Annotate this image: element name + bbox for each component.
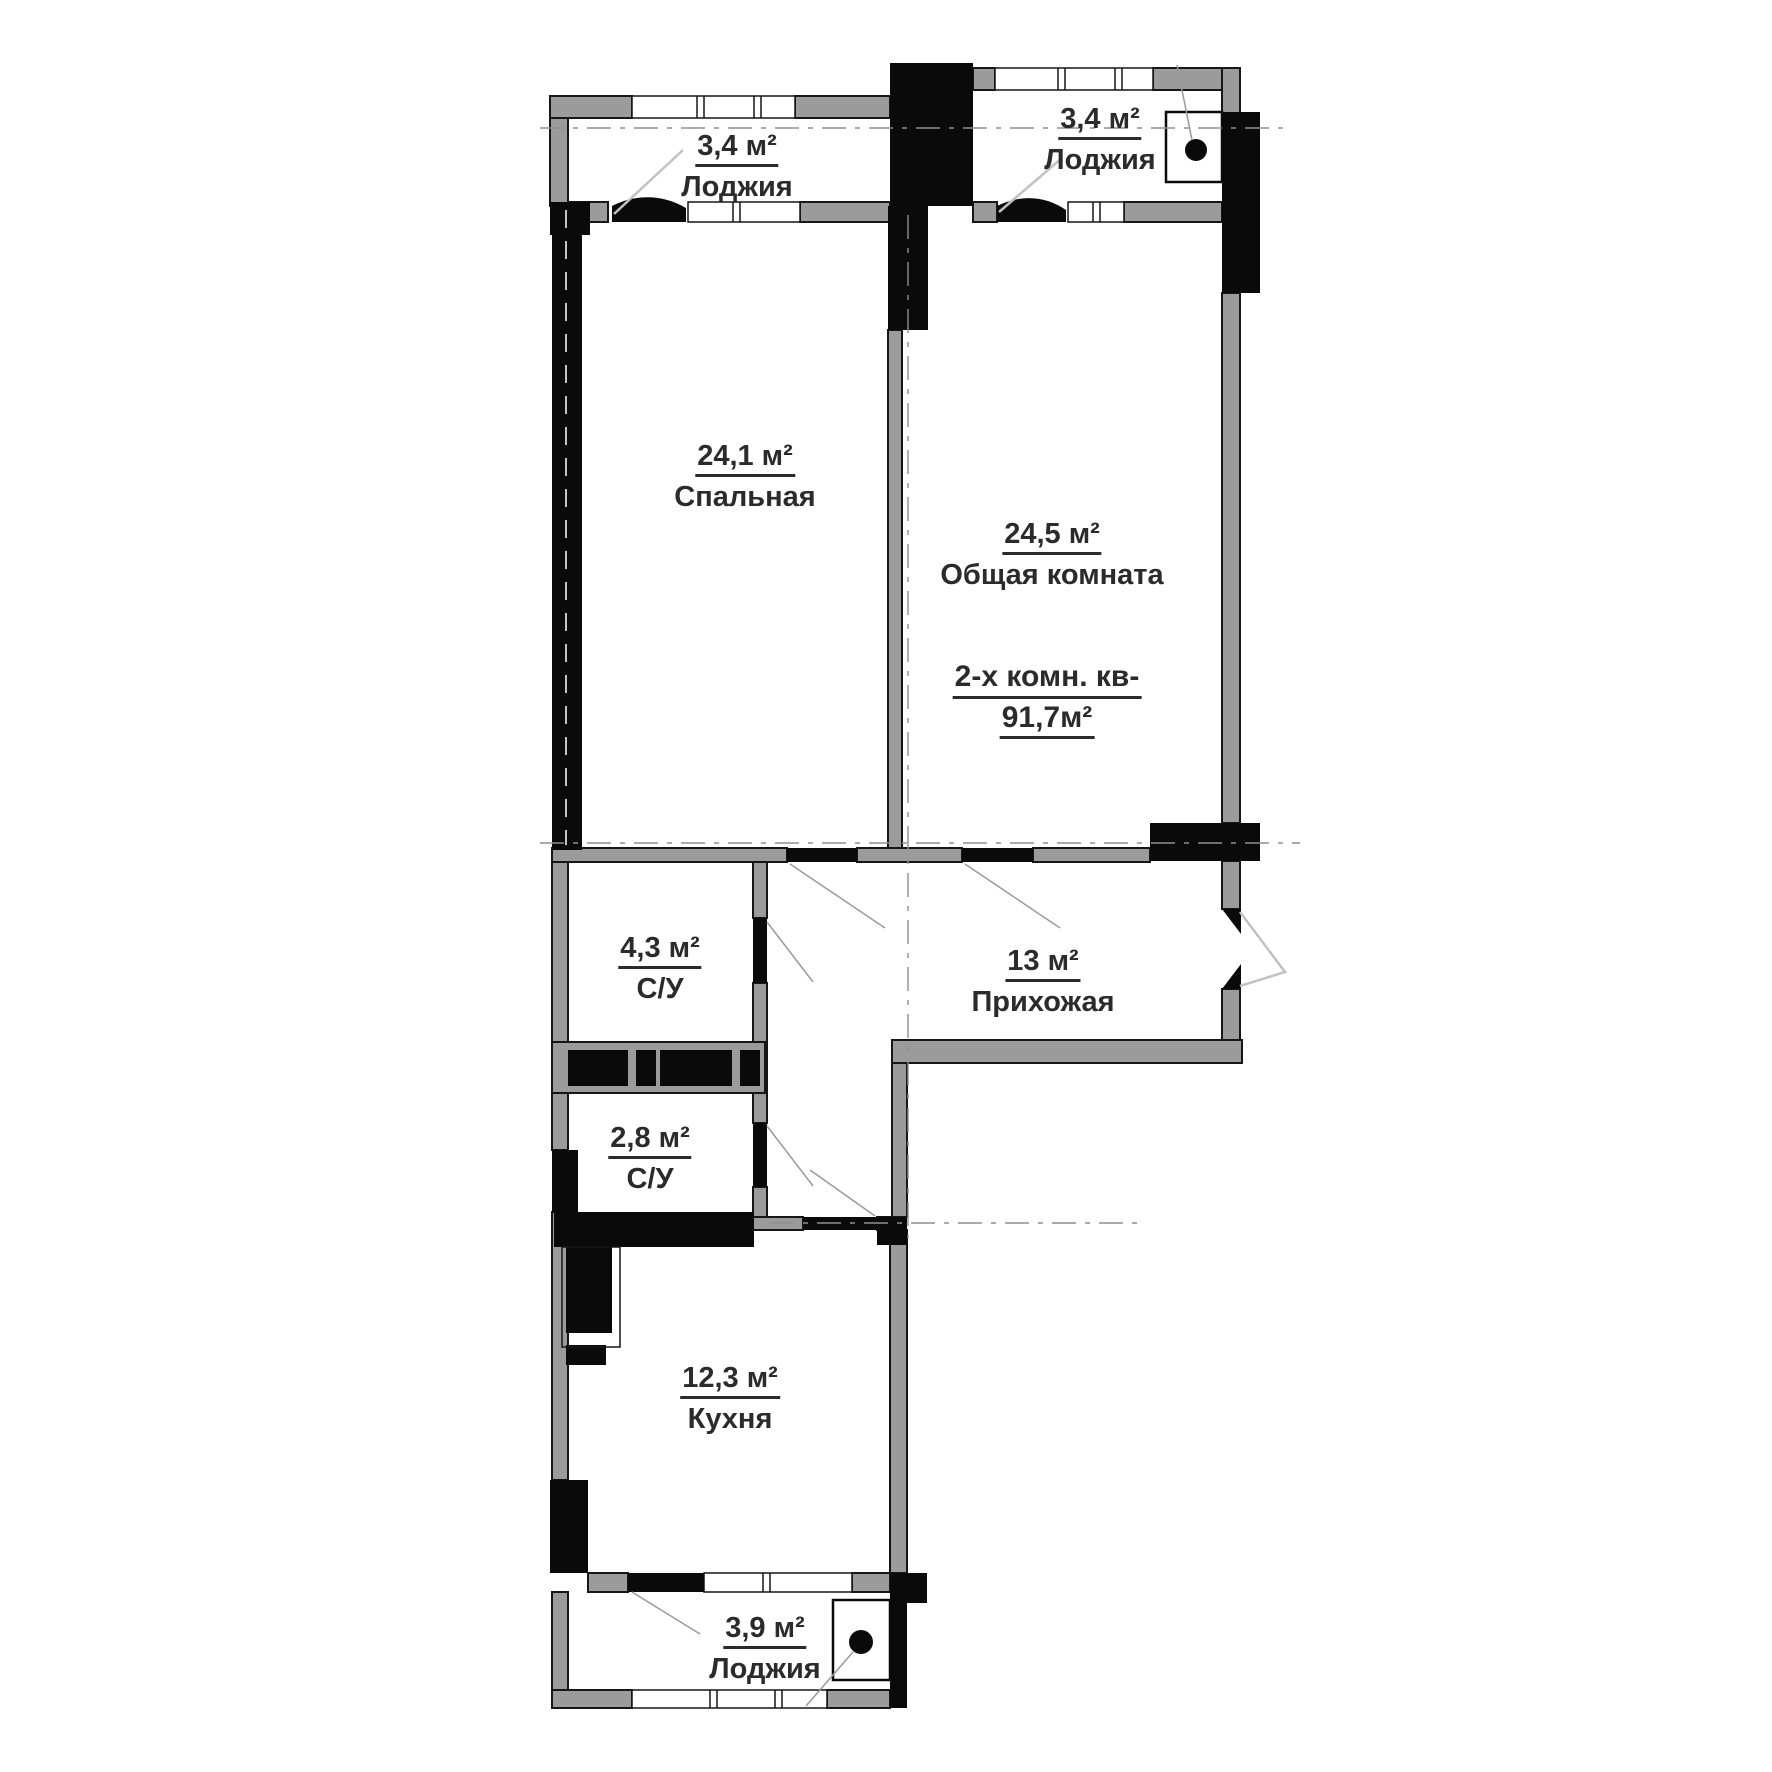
door-swing — [612, 150, 686, 222]
room-area: 3,4 м² — [1058, 103, 1141, 140]
room-name: Прихожая — [971, 986, 1114, 1019]
room-area: 24,1 м² — [695, 440, 795, 477]
room-label-loggia-top-left: 3,4 м² Лоджия — [681, 130, 792, 205]
apartment-title: 2-х комн. кв- 91,7м² — [953, 658, 1142, 739]
window — [632, 96, 795, 118]
room-label-bathroom-small: 2,8 м² С/У — [608, 1122, 691, 1197]
room-label-loggia-top-right: 3,4 м² Лоджия — [1044, 103, 1155, 178]
room-label-loggia-bottom: 3,9 м² Лоджия — [709, 1612, 820, 1687]
window — [1068, 202, 1124, 222]
room-area: 12,3 м² — [680, 1362, 780, 1399]
door-swing — [628, 1573, 704, 1634]
room-name: Лоджия — [709, 1653, 820, 1686]
window — [995, 68, 1153, 90]
room-name: С/У — [608, 1163, 691, 1196]
doorway — [753, 1123, 813, 1187]
room-area: 2,8 м² — [608, 1122, 691, 1159]
room-name: Спальная — [674, 481, 815, 514]
room-area: 3,4 м² — [695, 130, 778, 167]
doorway — [803, 1170, 877, 1230]
room-name: Кухня — [680, 1403, 780, 1436]
room-label-hallway: 13 м² Прихожая — [971, 945, 1114, 1020]
room-label-bedroom: 24,1 м² Спальная — [674, 440, 815, 515]
room-area: 4,3 м² — [618, 932, 701, 969]
room-name: Общая комната — [940, 559, 1163, 592]
window — [688, 202, 800, 222]
window — [632, 1690, 827, 1708]
floor-plan-page: 3,4 м² Лоджия 3,4 м² Лоджия 24,1 м² Спал… — [0, 0, 1772, 1772]
room-label-bathroom-large: 4,3 м² С/У — [618, 932, 701, 1007]
apartment-title-type: 2-х комн. кв- — [953, 660, 1142, 699]
room-area: 3,9 м² — [723, 1612, 806, 1649]
room-area: 24,5 м² — [1002, 518, 1102, 555]
doorway — [753, 918, 813, 983]
entrance-door — [1222, 909, 1285, 989]
room-name: Лоджия — [681, 171, 792, 204]
floor-plan-drawing — [0, 0, 1772, 1772]
apartment-title-area: 91,7м² — [1000, 701, 1095, 740]
room-name: С/У — [618, 973, 701, 1006]
fixtures-layer — [806, 65, 1222, 1706]
window — [704, 1573, 852, 1592]
room-area: 13 м² — [1005, 945, 1080, 982]
room-label-kitchen: 12,3 м² Кухня — [680, 1362, 780, 1437]
room-label-living-room: 24,5 м² Общая комната — [940, 518, 1163, 593]
room-name: Лоджия — [1044, 144, 1155, 177]
